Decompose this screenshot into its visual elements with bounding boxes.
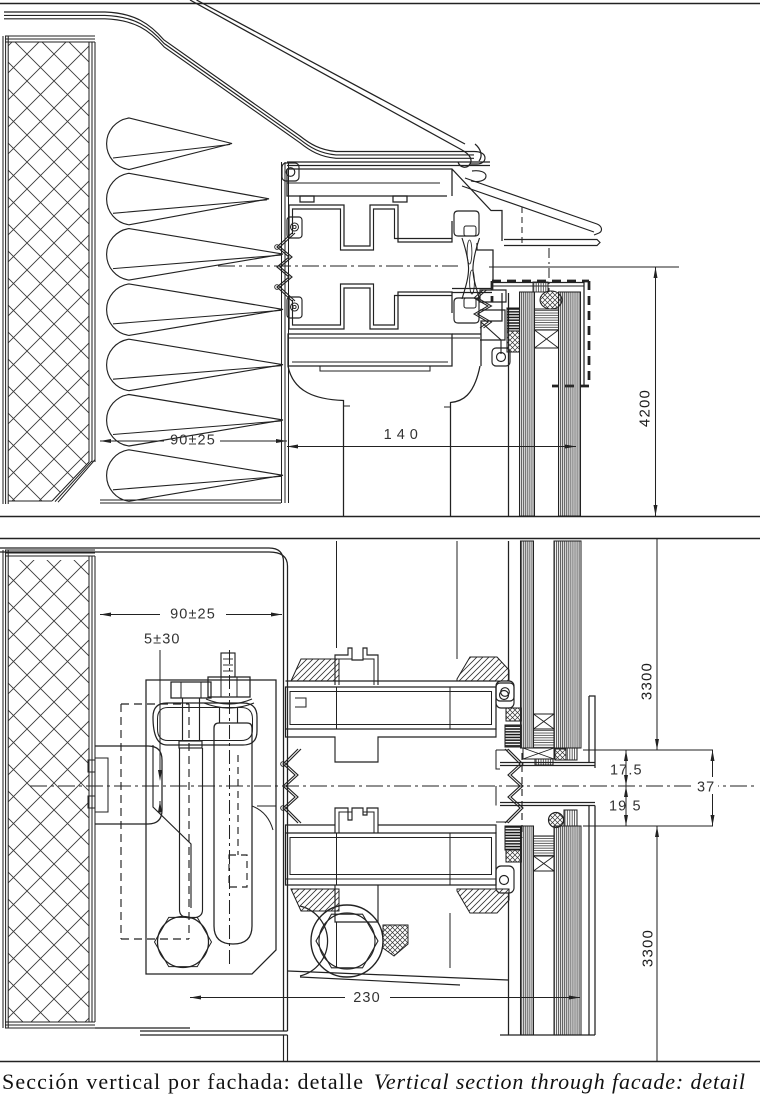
svg-text:1 4 0: 1 4 0 <box>384 427 419 443</box>
svg-text:90±25: 90±25 <box>170 607 216 623</box>
svg-text:17.5: 17.5 <box>610 763 643 779</box>
svg-text:37: 37 <box>697 780 715 796</box>
svg-text:Vertical section through facad: Vertical section through facade: detail <box>374 1069 745 1094</box>
svg-text:230: 230 <box>353 990 381 1006</box>
svg-text:3300: 3300 <box>639 662 656 700</box>
svg-text:Sección vertical por fachada:: Sección vertical por fachada: detalle <box>2 1069 363 1094</box>
svg-text:5±30: 5±30 <box>144 632 181 648</box>
svg-text:3300: 3300 <box>640 929 657 967</box>
svg-text:4200: 4200 <box>637 389 654 427</box>
svg-text:90±25: 90±25 <box>170 433 216 449</box>
svg-text:19 5: 19 5 <box>609 799 642 815</box>
